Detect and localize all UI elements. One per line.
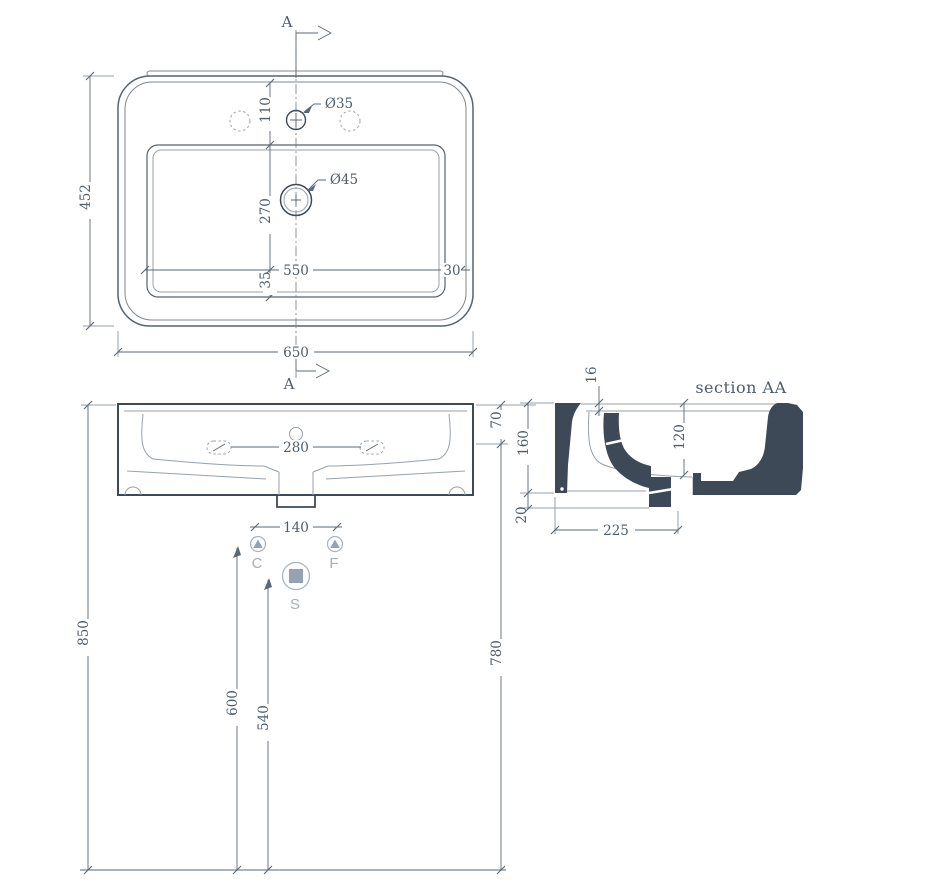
- section-right-wall-floor: [693, 403, 803, 495]
- optional-hole-left: [230, 111, 250, 131]
- drain-stub: [277, 495, 315, 507]
- dim-trap-height: 540: [256, 578, 275, 870]
- svg-text:550: 550: [283, 263, 309, 279]
- svg-text:160: 160: [516, 430, 532, 456]
- dim-drain-stub-width: 140: [250, 520, 342, 536]
- dim-height-under-rim: 780: [489, 640, 505, 666]
- section-view: section AA 16 120: [514, 366, 803, 539]
- svg-text:140: 140: [283, 520, 309, 536]
- section-left-wall: [555, 403, 581, 493]
- dim-height-to-top: 850: [76, 401, 116, 870]
- dim-faucet-offset: 110: [258, 97, 274, 123]
- dim-hole-offsets: 110 270 35: [258, 79, 277, 301]
- section-overflow-channel: [603, 413, 671, 507]
- section-title: section AA: [695, 378, 786, 397]
- dim-side-holes-spacing: 280: [231, 440, 361, 456]
- washbasin-drawing: Ø35 Ø45 A A 452: [0, 0, 950, 884]
- cold-label: C: [252, 555, 263, 572]
- dim-basin-width: 550 30: [141, 263, 470, 279]
- drain-hole-label: Ø45: [330, 172, 358, 188]
- dim-rim-and-under-rim: 70 780: [476, 401, 536, 870]
- dim-front-margin: 35: [258, 271, 274, 288]
- hot-label: F: [329, 555, 338, 572]
- faucet-hole-label: Ø35: [325, 96, 353, 112]
- dim-overall-width: 650: [114, 331, 477, 361]
- svg-text:16: 16: [584, 366, 600, 383]
- plan-inner-rim: [125, 82, 466, 320]
- front-view: 280 140 C F S 85: [76, 401, 536, 874]
- svg-text:280: 280: [283, 440, 309, 456]
- dim-cold-feed-height: 600: [225, 546, 244, 870]
- dim-overall-depth: 452: [78, 72, 114, 330]
- svg-text:225: 225: [603, 523, 629, 539]
- section-letter-top: A: [281, 13, 293, 31]
- dim-drain-offset: 270: [258, 198, 274, 224]
- technical-drawing-canvas: Ø35 Ø45 A A 452: [0, 0, 950, 884]
- svg-text:452: 452: [78, 184, 94, 210]
- dim-side-margin: 30: [443, 263, 460, 279]
- section-marker-top: A: [281, 13, 331, 78]
- dim-rim-drop: 70: [489, 411, 505, 428]
- faucet-hole-cross: [290, 113, 302, 127]
- mounting-hole-arcs: [125, 487, 465, 495]
- fixing-hole-dot: [560, 487, 563, 490]
- drain-hole-cross: [291, 195, 301, 205]
- dim-rim-thickness: 16: [584, 366, 603, 416]
- svg-text:540: 540: [256, 705, 272, 731]
- overflow-hole: [290, 428, 303, 441]
- svg-text:120: 120: [672, 424, 688, 450]
- plan-view: Ø35 Ø45 A A 452: [78, 13, 477, 393]
- optional-hole-right: [340, 111, 360, 131]
- svg-text:600: 600: [225, 690, 241, 716]
- svg-text:650: 650: [283, 345, 309, 361]
- dim-stub-drop: 20: [514, 506, 530, 523]
- plan-outer-rim: [118, 76, 473, 326]
- waste-label: S: [290, 596, 300, 613]
- drain-leader-arrow: [307, 184, 316, 191]
- svg-text:850: 850: [76, 620, 92, 646]
- section-marker-bottom: A: [283, 356, 329, 393]
- connection-symbols: C F S: [251, 537, 343, 614]
- section-letter-bottom: A: [283, 375, 295, 393]
